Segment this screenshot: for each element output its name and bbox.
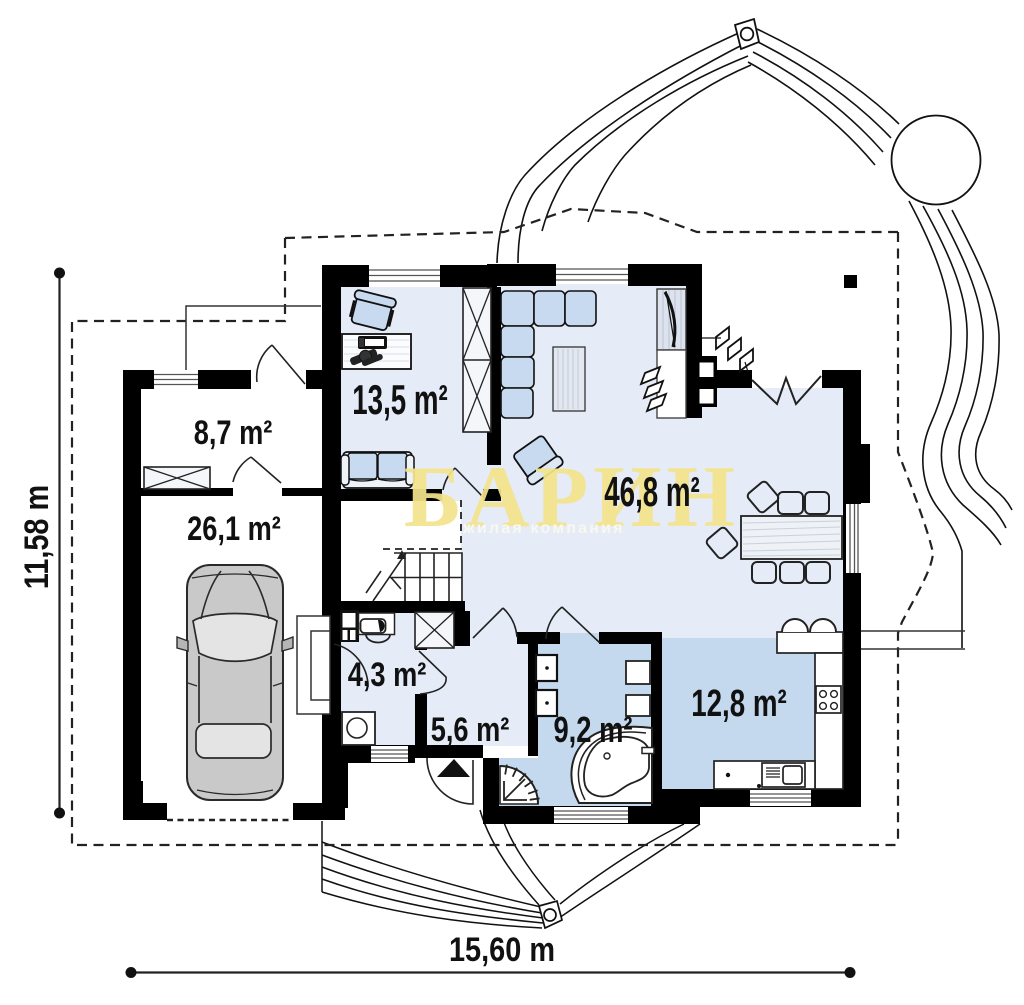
svg-text:15,60 m: 15,60 m [449, 930, 555, 969]
svg-text:4,3 m²: 4,3 m² [348, 655, 427, 694]
svg-text:8,7 m²: 8,7 m² [194, 413, 273, 452]
svg-text:46,8 m²: 46,8 m² [604, 468, 700, 515]
svg-text:жилая компания: жилая компания [462, 520, 624, 537]
svg-text:11,58 m: 11,58 m [17, 485, 56, 589]
svg-text:5,6 m²: 5,6 m² [431, 710, 510, 749]
svg-text:9,2 m²: 9,2 m² [553, 709, 632, 750]
svg-text:12,8 m²: 12,8 m² [691, 683, 787, 725]
svg-text:26,1 m²: 26,1 m² [187, 509, 281, 548]
svg-text:13,5 m²: 13,5 m² [352, 376, 448, 423]
